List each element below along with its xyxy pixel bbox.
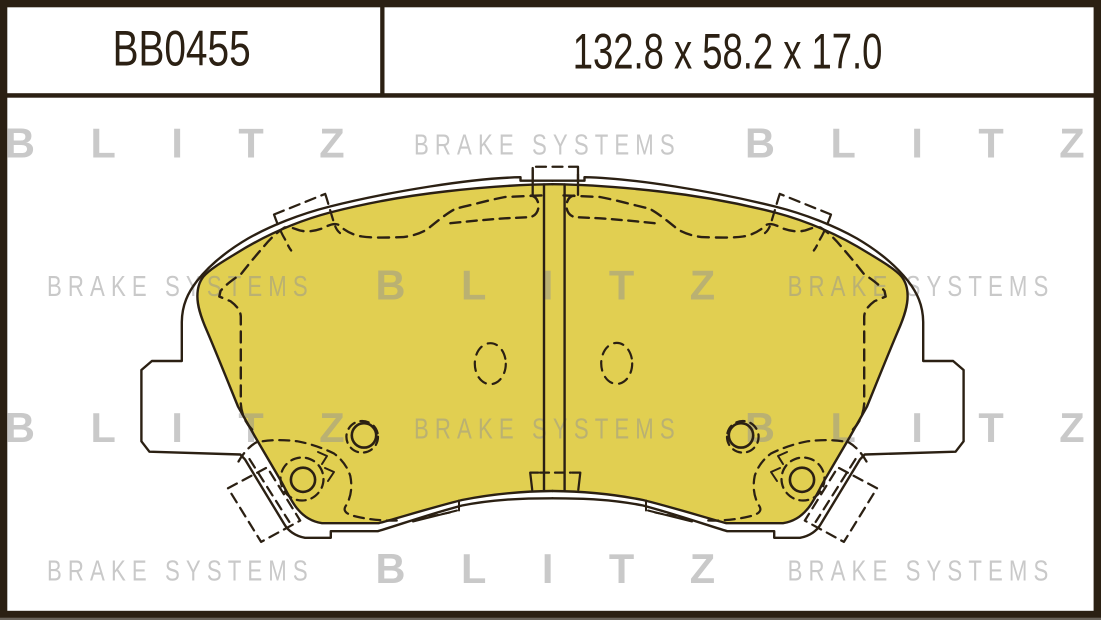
svg-text:BRAKE SYSTEMS: BRAKE SYSTEMS <box>788 556 1055 587</box>
svg-text:BRAKE SYSTEMS: BRAKE SYSTEMS <box>47 271 314 302</box>
svg-text:BLITZ: BLITZ <box>376 545 771 592</box>
svg-text:BLITZ: BLITZ <box>745 120 1101 167</box>
svg-text:BLITZ: BLITZ <box>745 404 1101 451</box>
svg-text:BLITZ: BLITZ <box>376 262 771 309</box>
svg-text:BRAKE SYSTEMS: BRAKE SYSTEMS <box>414 130 681 161</box>
svg-text:BB0455: BB0455 <box>113 21 251 77</box>
svg-text:BRAKE SYSTEMS: BRAKE SYSTEMS <box>788 271 1055 302</box>
svg-text:132.8 x 58.2 x 17.0: 132.8 x 58.2 x 17.0 <box>573 24 883 80</box>
svg-text:BLITZ: BLITZ <box>5 120 400 167</box>
svg-text:BRAKE SYSTEMS: BRAKE SYSTEMS <box>414 414 681 445</box>
svg-text:BRAKE SYSTEMS: BRAKE SYSTEMS <box>47 556 314 587</box>
svg-text:BLITZ: BLITZ <box>5 404 400 451</box>
